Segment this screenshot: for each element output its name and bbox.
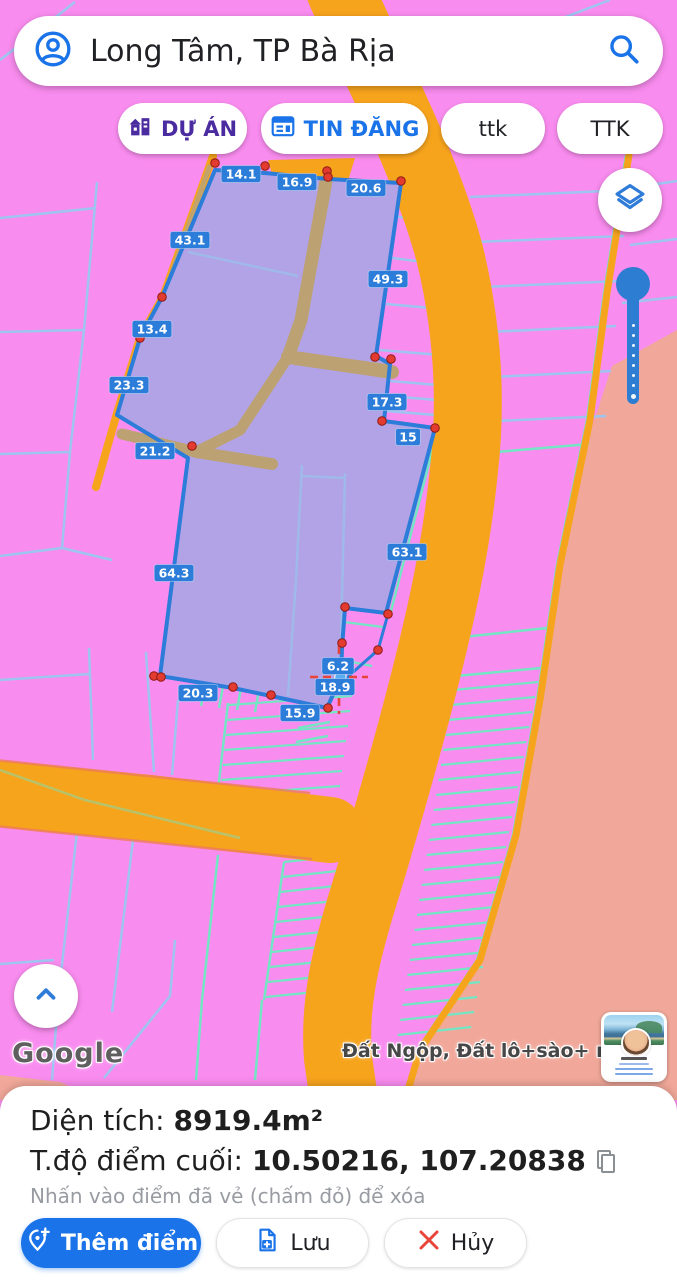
map-app-screen: { "search": { "query": "Long Tâm, TP Bà … [0,0,677,1280]
add-location-icon [24,1227,51,1260]
zoom-slider-track[interactable] [627,294,639,404]
vertex-dot[interactable] [157,673,166,682]
vertex-dot[interactable] [261,162,270,171]
area-row: Diện tích:8919.4m² [30,1104,323,1137]
measurement-chip: 49.3 [368,271,408,288]
measurement-chip: 64.3 [154,565,194,582]
land-area-label: Đất Ngộp, Đất lô+sào+ mẫu [342,1040,642,1062]
project-building-icon [128,114,153,144]
measurement-value: 6.2 [327,659,349,674]
measurement-value: 20.6 [351,181,382,196]
vertex-dot[interactable] [229,683,238,692]
measurement-chip: 15 [396,429,421,446]
search-input[interactable]: Long Tâm, TP Bà Rịa [90,34,607,69]
vertex-dot[interactable] [267,691,276,700]
save-button[interactable]: Lưu [216,1218,369,1268]
vertex-dot[interactable] [374,646,383,655]
map-layers-button[interactable] [598,168,662,232]
measurement-value: 63.1 [392,545,423,560]
filter-du-an[interactable]: DỰ ÁN [118,103,247,154]
measurement-chip: 63.1 [387,544,427,561]
coord-value: 10.50216, 107.20838 [252,1144,586,1177]
measurement-value: 13.4 [137,322,168,337]
measurement-value: 15 [399,430,416,445]
vertex-dot[interactable] [324,704,333,713]
area-label: Diện tích: [30,1104,165,1137]
chevron-up-icon [31,979,61,1013]
filter-label: TTK [590,117,629,141]
measurement-chip: 13.4 [132,321,172,338]
filter-label: ttk [479,117,508,141]
search-icon[interactable] [607,32,641,70]
measurement-chip: 6.2 [322,658,354,675]
measurement-value: 15.9 [285,706,316,721]
measurement-chip: 17.3 [367,394,407,411]
vertex-dot[interactable] [371,353,380,362]
vertex-dot[interactable] [324,173,333,182]
listing-marker-card[interactable] [601,1012,667,1082]
search-bar[interactable]: Long Tâm, TP Bà Rịa [14,16,663,86]
measurement-value: 43.1 [175,233,206,248]
measurement-value: 23.3 [114,378,145,393]
add-point-label: Thêm điểm [61,1231,198,1256]
filter-label: TIN ĐĂNG [304,117,420,141]
filter-ttk-lower[interactable]: ttk [441,103,545,154]
info-bottom-sheet: Diện tích:8919.4m² T.độ điểm cuối:10.502… [0,1086,677,1280]
layers-icon [612,180,648,220]
listing-avatar [621,1028,651,1058]
vertex-dot[interactable] [341,603,350,612]
delete-hint: Nhấn vào điểm đã vẻ (chấm đỏ) để xóa [30,1184,426,1208]
copy-icon[interactable] [597,1150,614,1172]
filter-tin-dang[interactable]: TIN ĐĂNG [261,103,428,154]
expand-sheet-button[interactable] [14,964,78,1028]
vertex-dot[interactable] [397,177,406,186]
measurement-chip: 14.1 [221,166,261,183]
measurement-chip: 21.2 [135,443,175,460]
add-point-button[interactable]: Thêm điểm [21,1218,201,1268]
listing-card-text [601,1057,667,1075]
vertex-dot[interactable] [211,159,220,168]
zoom-slider-knob[interactable] [616,267,650,301]
vertex-dot[interactable] [384,610,393,619]
save-label: Lưu [290,1231,330,1256]
measurement-chip: 20.3 [178,685,218,702]
vertex-dot[interactable] [431,424,440,433]
cancel-x-icon [417,1228,441,1258]
save-document-icon [254,1227,280,1259]
vertex-dot[interactable] [188,442,197,451]
news-listing-icon [270,113,296,144]
measurement-chip: 18.9 [315,679,355,696]
measurement-value: 64.3 [159,566,190,581]
map-canvas[interactable]: 14.116.920.643.149.313.423.317.31521.263… [0,0,677,1100]
measurement-chip: 43.1 [170,232,210,249]
cancel-label: Hủy [451,1231,495,1256]
measurement-value: 18.9 [320,680,351,695]
measurement-chip: 23.3 [109,377,149,394]
area-value: 8919.4m² [174,1104,324,1137]
measurement-value: 17.3 [372,395,403,410]
coord-label: T.độ điểm cuối: [30,1144,243,1177]
coordinates-row: T.độ điểm cuối:10.50216, 107.20838 [30,1144,614,1177]
measurement-value: 16.9 [282,175,313,190]
vertex-dot[interactable] [387,355,396,364]
measurement-chip: 15.9 [280,705,320,722]
google-attribution: Google [12,1038,124,1069]
vertex-dot[interactable] [158,293,167,302]
filter-label: DỰ ÁN [161,117,237,141]
measurement-value: 49.3 [373,272,404,287]
cancel-button[interactable]: Hủy [384,1218,527,1268]
account-icon[interactable] [34,30,72,72]
filter-ttk-upper[interactable]: TTK [557,103,663,154]
vertex-dot[interactable] [338,639,347,648]
measurement-chip: 20.6 [346,180,386,197]
measurement-chip: 16.9 [277,174,317,191]
vertex-dot[interactable] [378,417,387,426]
measurement-value: 14.1 [226,167,257,182]
measurement-value: 21.2 [140,444,171,459]
measurement-value: 20.3 [183,686,214,701]
